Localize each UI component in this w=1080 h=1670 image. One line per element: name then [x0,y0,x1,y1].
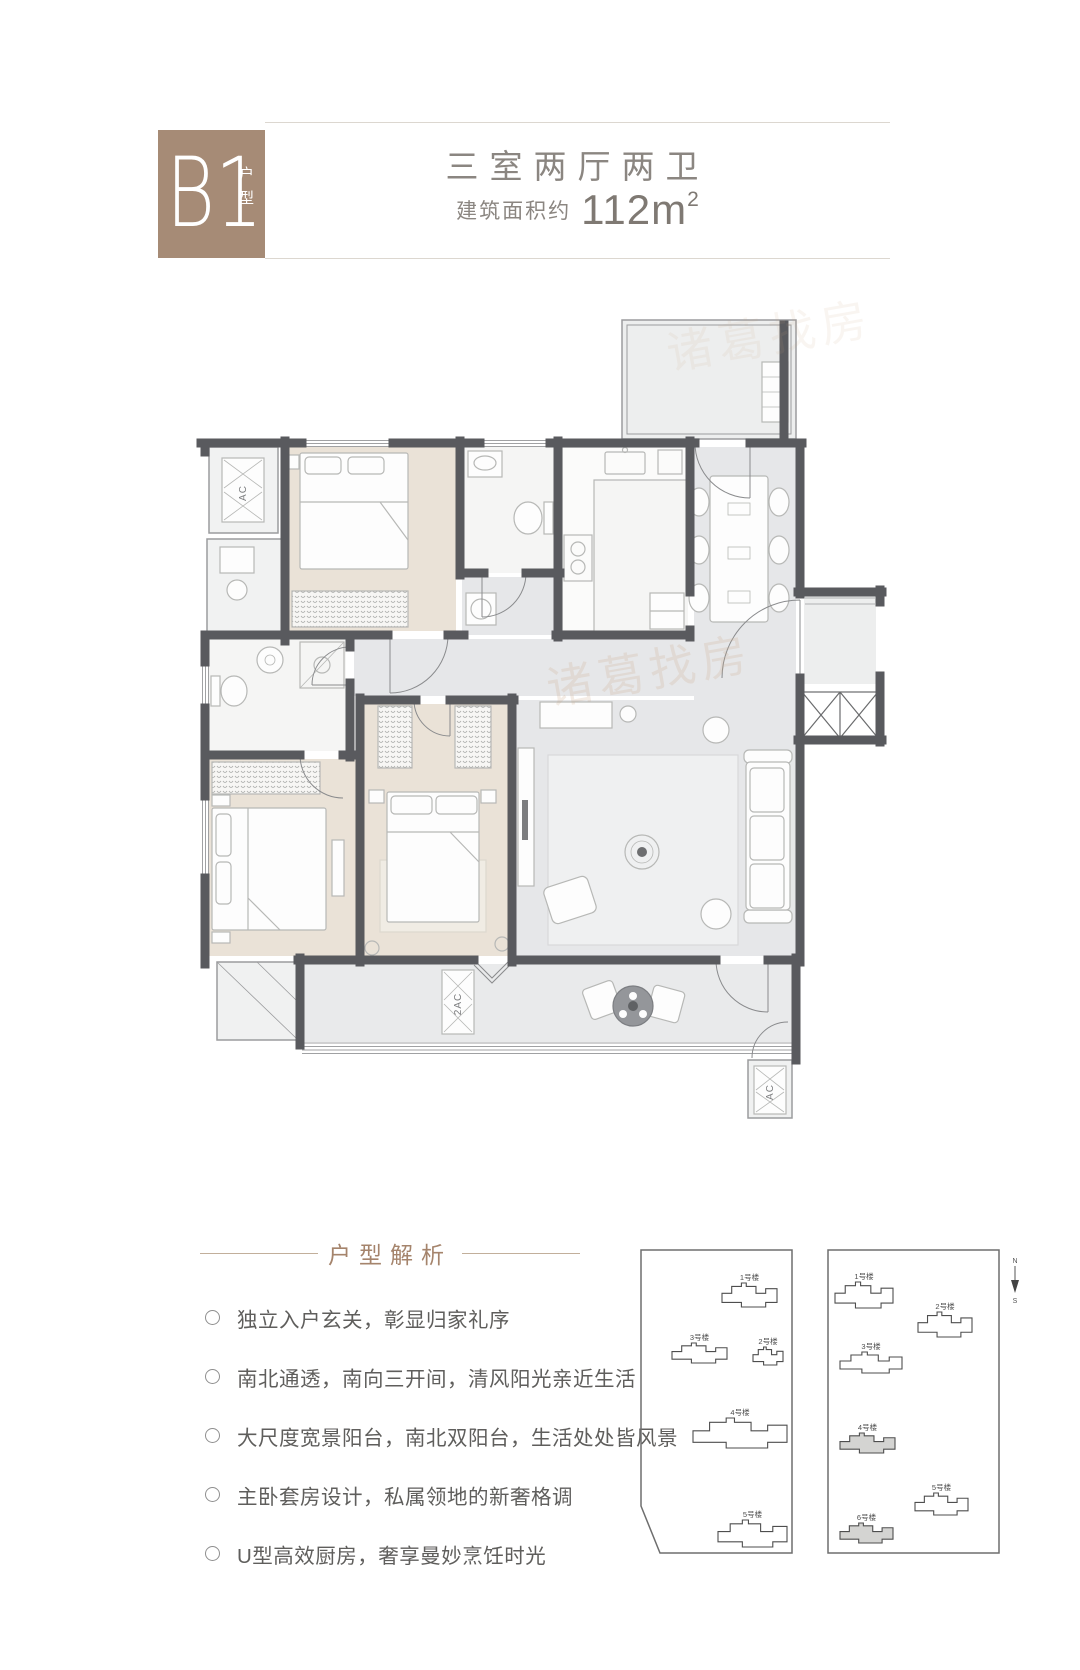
siteplan-building [722,1283,777,1307]
siteplan-building [753,1347,783,1365]
siteplan-building [918,1312,972,1337]
basin-icon [227,580,247,600]
bullet-circle-icon [205,1310,220,1325]
brochure-page: B1 户型 三室两厅两卫 建筑面积约112m2 [0,0,1080,1670]
tv-icon [522,800,528,840]
siteplan-building [835,1282,893,1308]
siteplan-building-label: 4号楼 [730,1407,750,1417]
unit-type-badge: B1 户型 [158,130,265,258]
bullet-text: 独立入户玄关，彰显归家礼序 [237,1303,510,1333]
area-sup: 2 [687,188,699,211]
header-rule-bottom [265,258,890,259]
siteplan-building-label: 3号楼 [861,1341,881,1351]
siteplan-building [672,1343,727,1363]
siteplan-building-label: 1号楼 [854,1271,874,1281]
pouf [701,899,731,929]
siteplan-building-label: 3号楼 [690,1332,710,1342]
laundry-counter [220,547,254,573]
furniture-bedroom-2 [289,453,408,627]
siteplan-building-label: 2号楼 [935,1301,955,1311]
unit-code-suffix: 户型 [235,166,256,214]
siteplan-building [915,1493,968,1515]
list-item: U型高效厨房，奢享曼妙烹饪时光 [205,1524,678,1583]
siteplans: 1号楼3号楼2号楼4号楼5号楼 1号楼2号楼3号楼4号楼5号楼6号楼 N S [630,1240,1050,1660]
bullet-circle-icon [205,1546,220,1561]
list-item: 大尺度宽景阳台，南北双阳台，生活处处皆风景 [205,1406,678,1465]
compass-south-label: S [1013,1298,1018,1305]
bullet-text: 南北通透，南向三开间，清风阳光亲近生活 [237,1362,636,1392]
dining-table [710,476,768,622]
siteplan-building-label: 6号楼 [857,1512,877,1522]
siteplan-building-label: 5号楼 [743,1509,763,1519]
siteplan-building [718,1520,787,1547]
header-rule-top [265,122,890,123]
balcony-floor [302,964,796,1042]
siteplan-building-label: 5号楼 [932,1482,952,1492]
list-item: 南北通透，南向三开间，清风阳光亲近生活 [205,1347,678,1406]
area-value: 112m [581,186,687,233]
ac-label-right: AC [765,1084,776,1100]
bullet-text: U型高效厨房，奢享曼妙烹饪时光 [237,1539,546,1569]
entry-landing-floor [804,596,876,684]
siteplan-building-label: 1号楼 [740,1272,760,1282]
compass-north-label: N [1012,1258,1017,1265]
area-label: 建筑面积约 [456,200,571,223]
bullet-circle-icon [205,1369,220,1384]
heading-text: 户型解析 [318,1236,462,1270]
bullet-circle-icon [205,1428,220,1443]
pouf [703,717,729,743]
dining-set [689,476,789,622]
bullet-circle-icon [205,1487,220,1502]
heading-rule-right [462,1253,580,1254]
area-line: 建筑面积约112m2 [265,186,890,234]
compass-icon: N S [1011,1258,1019,1305]
heading-rule-left [200,1253,318,1254]
analysis-bullets: 独立入户玄关，彰显归家礼序 南北通透，南向三开间，清风阳光亲近生活 大尺度宽景阳… [205,1288,678,1583]
analysis-heading: 户型解析 [200,1236,580,1270]
siteplan-left-buildings: 1号楼3号楼2号楼4号楼5号楼 [672,1272,787,1547]
list-item: 独立入户玄关，彰显归家礼序 [205,1288,678,1347]
floor-lamp-icon [620,706,636,722]
siteplan-building-label: 4号楼 [858,1422,878,1432]
bullet-text: 主卧套房设计，私属领地的新奢格调 [237,1480,573,1510]
siteplan-building [840,1352,902,1373]
list-item: 主卧套房设计，私属领地的新奢格调 [205,1465,678,1524]
siteplan-building [693,1418,787,1448]
ac-label-top: AC [238,485,249,501]
ac-label-balcony: 2AC [453,993,464,1015]
page-title: 三室两厅两卫 [265,140,890,188]
siteplan-building [840,1523,893,1543]
siteplan-right-buildings: 1号楼2号楼3号楼4号楼5号楼6号楼 [835,1271,972,1543]
floorplan: AC 2AC AC 诸葛找房 诸葛找房 [150,300,910,1120]
siteplan-building [840,1433,895,1453]
siteplan-building-label: 2号楼 [758,1336,778,1346]
bullet-text: 大尺度宽景阳台，南北双阳台，生活处处皆风景 [237,1421,678,1451]
